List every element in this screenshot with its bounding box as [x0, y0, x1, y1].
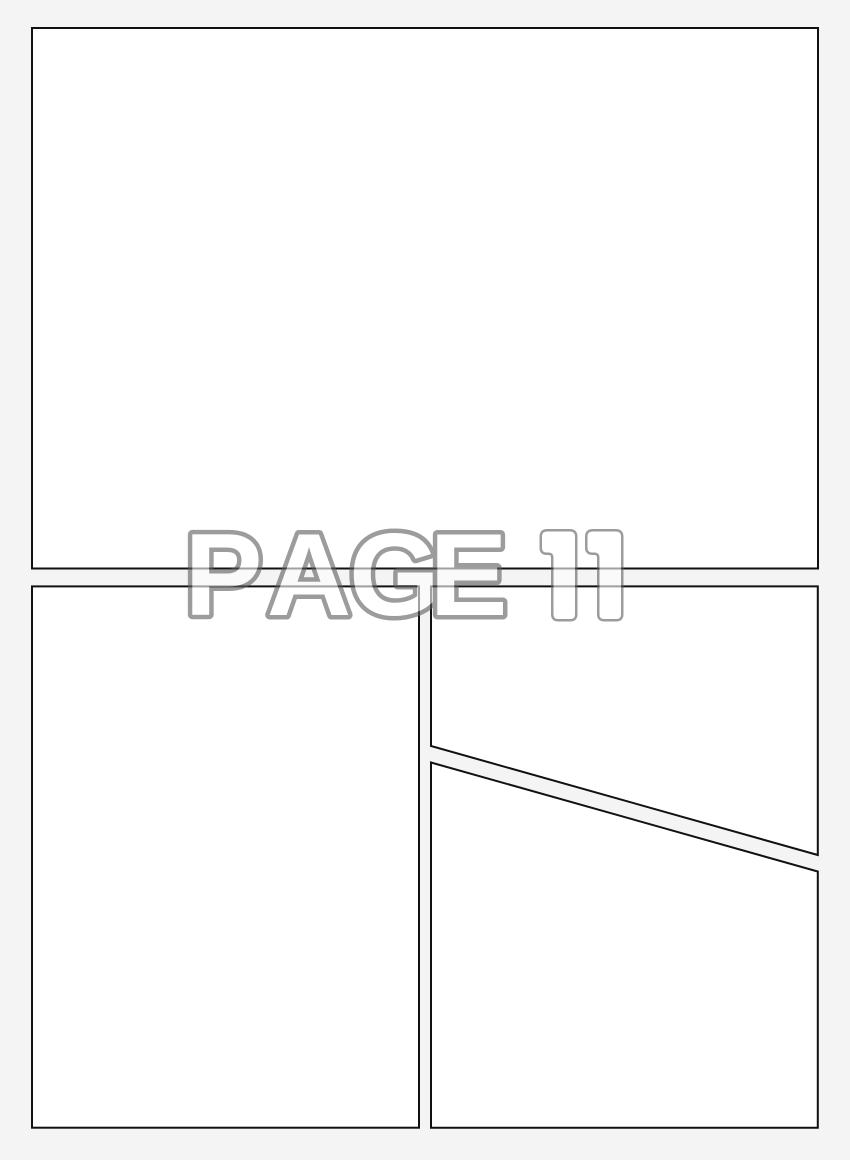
svg-text:G: G [349, 509, 440, 640]
svg-text:E: E [429, 509, 507, 640]
svg-text:P: P [184, 509, 262, 640]
svg-text:A: A [267, 509, 352, 640]
